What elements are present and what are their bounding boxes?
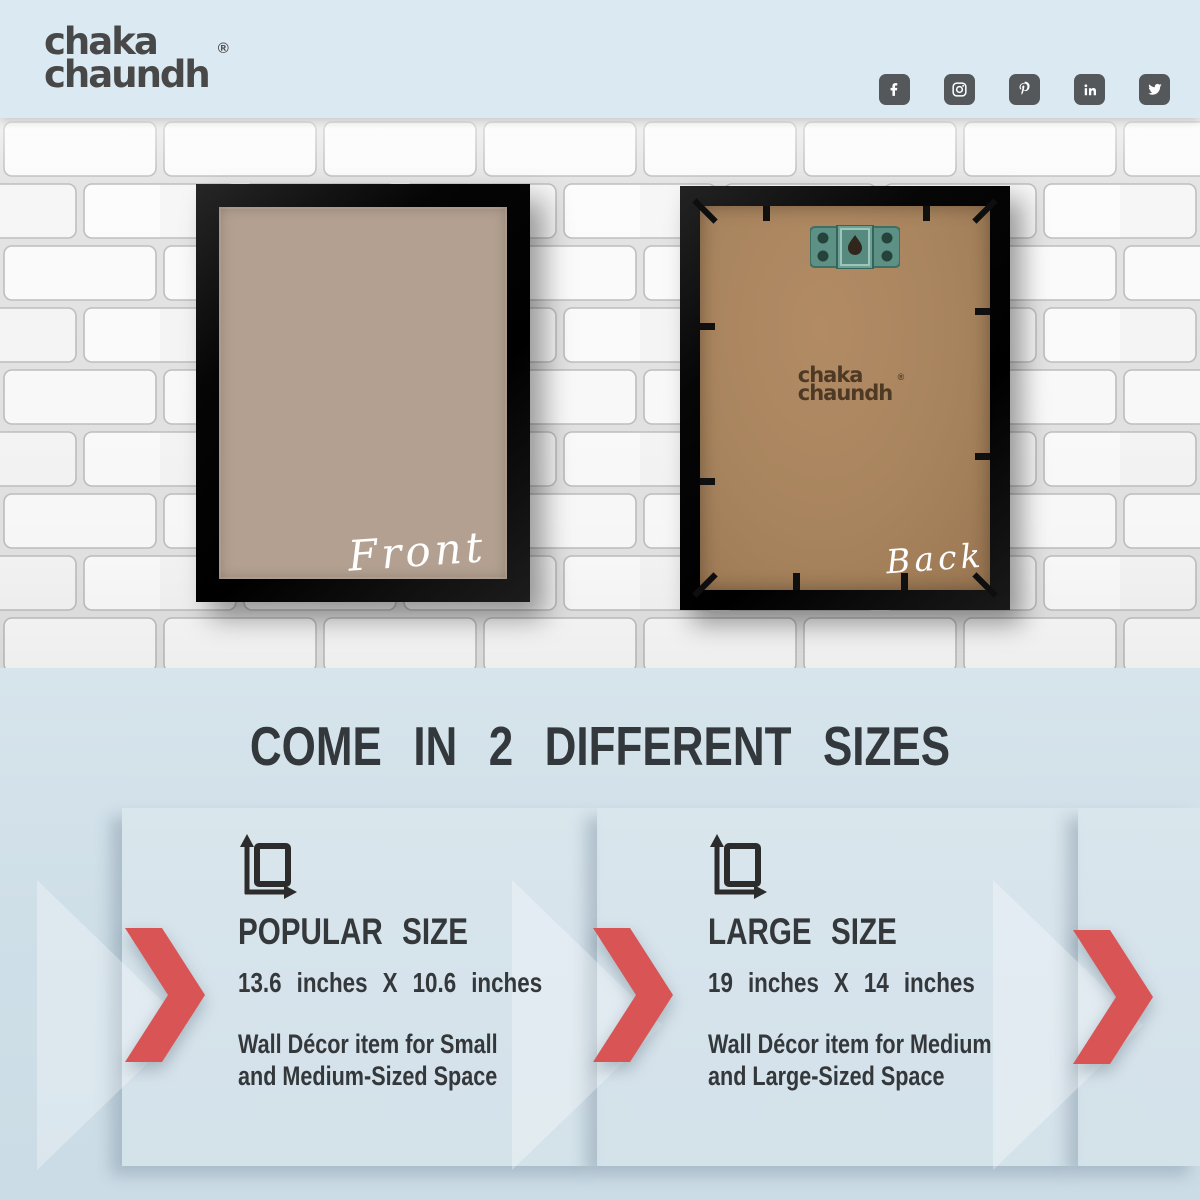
red-chevron-icon — [593, 928, 673, 1062]
sizes-heading: COME IN 2 DIFFERENT SIZES — [120, 714, 1080, 778]
clip-bottom-left — [793, 573, 800, 590]
clip-top-right — [923, 206, 930, 221]
red-chevron-icon — [1073, 930, 1153, 1064]
dimensions-icon — [238, 833, 298, 901]
size-dimensions: 19 inches X 14 inches — [708, 967, 996, 999]
back-label: Back — [884, 536, 985, 582]
wall-shading — [0, 118, 1200, 668]
size-option-large: LARGE SIZE 19 inches X 14 inches Wall Dé… — [708, 833, 1068, 1093]
instagram-icon[interactable] — [944, 74, 975, 105]
clip-left-lower — [700, 478, 715, 485]
size-description-line1: Wall Décor item for Small — [238, 1029, 498, 1059]
dimensions-icon — [708, 833, 768, 901]
frame-back: chaka chaundh ® Back — [680, 186, 1010, 610]
hanging-hook — [810, 225, 900, 274]
back-stamp-line2: chaundh — [798, 384, 892, 402]
linkedin-icon[interactable] — [1074, 74, 1105, 105]
size-description-line2: and Large-Sized Space — [708, 1061, 944, 1091]
size-option-popular: POPULAR SIZE 13.6 inches X 10.6 inches W… — [238, 833, 598, 1093]
size-description-line1: Wall Décor item for Medium — [708, 1029, 992, 1059]
back-stamp-registered: ® — [898, 374, 905, 382]
clip-right-lower — [975, 453, 990, 460]
social-links — [879, 74, 1170, 105]
back-stamp-logo: chaka chaundh ® — [798, 366, 892, 403]
size-description-line2: and Medium-Sized Space — [238, 1061, 497, 1091]
red-chevron-icon — [125, 928, 205, 1062]
size-title: POPULAR SIZE — [238, 911, 526, 953]
top-bar: chaka chaundh ® — [0, 0, 1200, 118]
size-title: LARGE SIZE — [708, 911, 996, 953]
clip-right-upper — [975, 308, 990, 315]
pinterest-icon[interactable] — [1009, 74, 1040, 105]
twitter-icon[interactable] — [1139, 74, 1170, 105]
facebook-icon[interactable] — [879, 74, 910, 105]
clip-top-left — [763, 206, 770, 221]
size-description: Wall Décor item for Small and Medium-Siz… — [238, 1029, 526, 1093]
size-dimensions: 13.6 inches X 10.6 inches — [238, 967, 526, 999]
clip-left-upper — [700, 323, 715, 330]
page: chaka chaundh ® — [0, 0, 1200, 1200]
size-description: Wall Décor item for Medium and Large-Siz… — [708, 1029, 996, 1093]
registered-mark: ® — [218, 42, 229, 55]
brick-wall: Front chaka chaundh ® — [0, 118, 1200, 668]
sizes-section: COME IN 2 DIFFERENT SIZES — [0, 668, 1200, 1200]
brand-logo: chaka chaundh ® — [44, 26, 209, 91]
front-label: Front — [346, 522, 488, 581]
frame-front: Front — [196, 184, 530, 602]
brand-logo-line2: chaundh — [44, 58, 209, 91]
